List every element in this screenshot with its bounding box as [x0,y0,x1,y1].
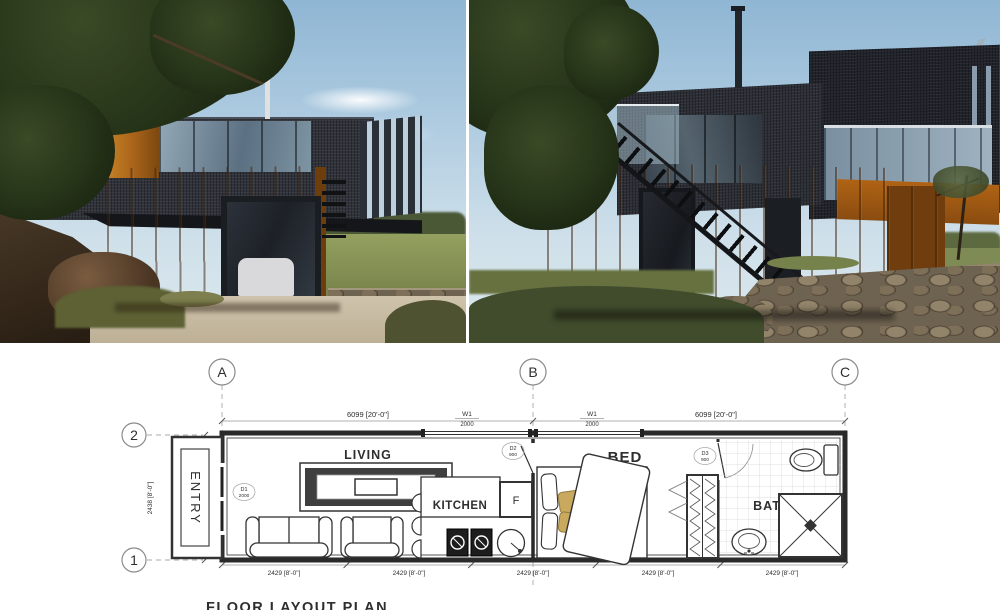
grid-col-a: A [217,364,227,380]
dim-top-left: 6099 [20'-0"] [347,410,389,419]
window-w1-right [534,429,644,437]
dim-bottom-1: 2429 [8'-0"] [268,570,301,577]
roof-flue [265,78,270,119]
door-size-d3: 900 [701,457,709,463]
photo-left-container-house [0,0,466,343]
grass-tuft [767,256,859,270]
floor-plan-drawing: A B C 2 1 6099 [20'-0"] 6099 [20'-0"] W1… [0,343,1000,610]
cloud [300,86,420,114]
floor-plan: A B C 2 1 6099 [20'-0"] 6099 [20'-0"] W1… [0,343,1000,610]
dim-bottom-4: 2429 [8'-0"] [642,570,675,577]
roof-flue [735,8,742,88]
room-label-kitchen: KITCHEN [433,500,488,512]
dim-bottom-5: 2429 [8'-0"] [766,570,799,577]
door-tag-d1: D1 [240,487,247,493]
grid-row-2: 2 [130,427,138,443]
window-size-w1-right: 2000 [585,422,599,428]
window-w1-left [421,429,532,437]
window-tag-w1-left: W1 [462,411,472,418]
pillow [541,473,558,510]
plan-title: FLOOR LAYOUT PLAN [206,600,388,610]
photo-right-container-house [469,0,1000,343]
shower [779,494,842,557]
window-band [159,121,311,172]
ground-shadow [554,310,894,320]
door-size-d2: 900 [509,452,517,458]
ground-shadow [115,303,340,312]
dining-chairs [412,494,421,558]
louver-fins [360,116,422,220]
kitchen-sink [498,530,525,557]
stair-end [322,180,346,238]
fridge-label: F [513,495,520,507]
interior-furniture [238,258,294,296]
roof-flue-cap [731,6,745,11]
loveseat [341,517,403,557]
bath-sink [732,529,766,555]
door-tag-d3: D3 [701,451,708,457]
grid-col-b: B [528,364,537,380]
door-tag-d2: D2 [509,446,516,452]
dim-bottom-2: 2429 [8'-0"] [393,570,426,577]
grid-col-c: C [840,364,850,380]
room-label-entry: ENTRY [188,471,203,525]
room-label-living-1: LIVING [344,448,392,462]
sofa [246,517,332,557]
entry-vestibule: ENTRY [172,437,226,558]
pillow [541,513,558,550]
door-size-d1: 2000 [239,493,250,499]
window-size-w1-left: 2000 [460,422,474,428]
dim-top-right: 6099 [20'-0"] [695,410,737,419]
dim-bottom-3: 2429 [8'-0"] [517,570,550,577]
window-tag-w1-right: W1 [587,411,597,418]
grid-row-1: 1 [130,552,138,568]
top-dimension: 6099 [20'-0"] 6099 [20'-0"] W1 2000 W1 2… [219,410,848,428]
bathroom: BATH [720,440,842,557]
bottom-dimension: 2429 [8'-0"] 2429 [8'-0"] 2429 [8'-0"] 2… [219,562,848,577]
dim-side: 2438 [8'-0"] [147,481,154,514]
